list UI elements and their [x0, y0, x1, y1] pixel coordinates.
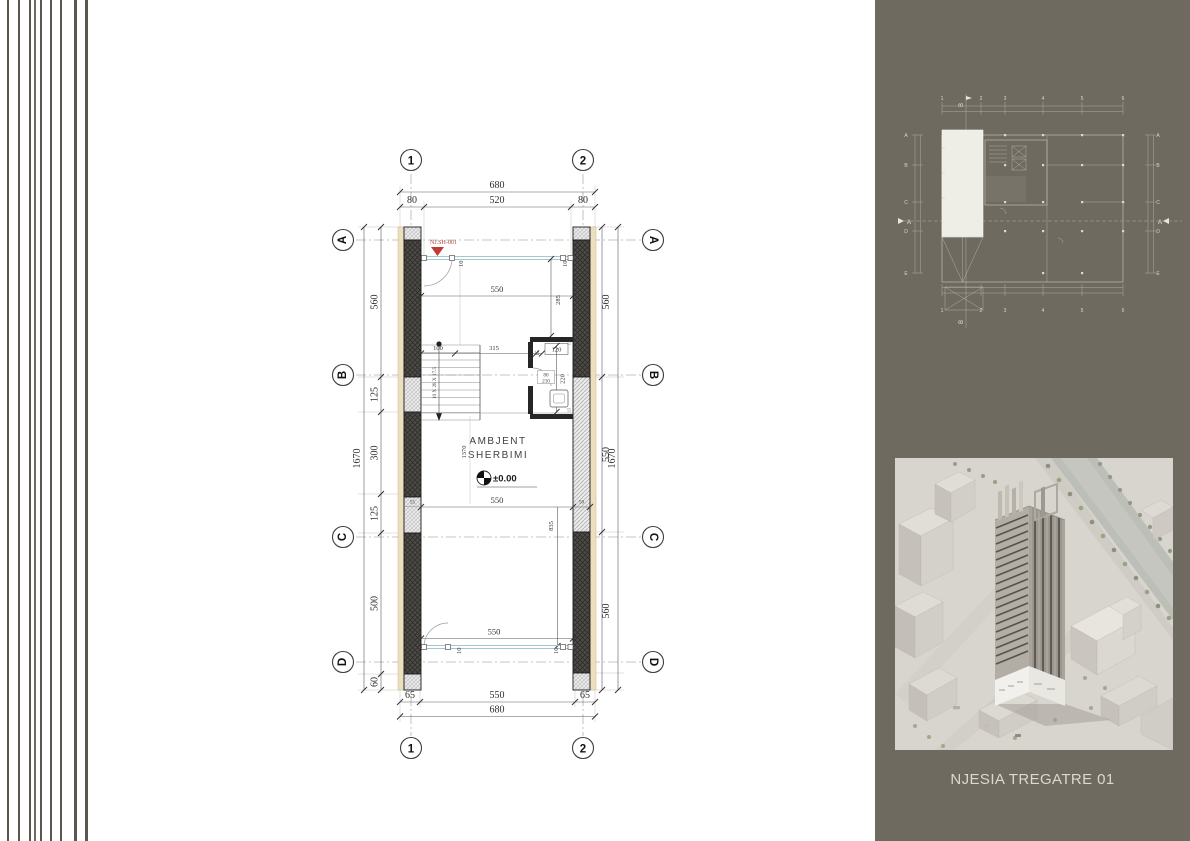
dim: 680	[490, 705, 505, 716]
car	[983, 724, 990, 727]
dim: 15	[535, 350, 541, 356]
unit-tag-label: NJ.SH-001	[430, 240, 457, 246]
dim: 80	[578, 195, 588, 206]
decorative-line	[34, 0, 36, 841]
kp-row: C	[904, 200, 908, 206]
grid-bubble-A-right: A	[647, 236, 659, 244]
level-value: ±0.00	[493, 474, 517, 485]
upper-interior-dims: 550 285	[418, 256, 576, 339]
stair-note: 10 X 28 X 17.5	[432, 367, 438, 400]
right-dims: 560 550 560 1670	[599, 224, 621, 693]
dim: 15	[567, 407, 572, 412]
kp-row: C	[1156, 200, 1160, 206]
kp-col: 1	[941, 308, 944, 314]
keyplan-building	[942, 130, 1124, 310]
dim: 220	[560, 374, 567, 384]
grid-bubble-C-left: C	[337, 533, 349, 541]
glass-thk-label: 10	[553, 648, 560, 655]
dim: 80	[407, 195, 417, 206]
glass-thk-label: 10	[458, 261, 465, 268]
kp-col: 3	[1004, 96, 1007, 102]
decorative-line	[7, 0, 9, 841]
grid-bubble-2-bottom: 2	[580, 744, 586, 756]
kp-row: D	[904, 229, 908, 235]
dim: 1370	[461, 446, 468, 459]
dim: 60	[370, 677, 381, 687]
wc-fixture	[550, 390, 568, 407]
car	[1015, 734, 1021, 737]
kp-row: A	[1156, 133, 1160, 139]
flag-label-top: B	[959, 103, 965, 107]
dim: 560	[601, 295, 612, 310]
dim: 500	[370, 596, 381, 611]
grid-bubble-A-left: A	[337, 236, 349, 244]
side-panel: 1 2 3 4 5 6 1 2 3 4 5 6 A B C D E A B C	[875, 0, 1190, 841]
unit-tag-marker	[431, 247, 444, 256]
presentation-board: 10 10 NJ.SH-001 550 285 10 X 28 X 17.5	[0, 0, 1190, 841]
dim: 125	[370, 387, 381, 402]
wc-rooms: 120 80 210 220 15 15	[528, 337, 573, 419]
dim: 15	[567, 340, 572, 345]
render-caption: NJESIA TREGATRE 01	[875, 771, 1190, 788]
room-annotation: AMBJENT SHERBIMI 1370 ±0.00	[461, 416, 537, 504]
dim: 550	[491, 495, 504, 505]
dim: 55	[410, 500, 416, 506]
kp-col: 1	[941, 96, 944, 102]
flag-label-bottom: B	[959, 320, 965, 324]
kp-col: 3	[1004, 308, 1007, 314]
grid-bubble-C-right: C	[647, 533, 659, 541]
kp-row: A	[904, 133, 908, 139]
grid-bubble-1-bottom: 1	[408, 744, 415, 756]
dim: 50	[579, 500, 585, 506]
kp-col: 4	[1042, 96, 1045, 102]
grid-bubble-D-left: D	[337, 658, 349, 666]
dim: 1670	[607, 449, 618, 469]
decorative-line	[18, 0, 20, 841]
kp-row: E	[1156, 271, 1160, 277]
grid-bubble-B-left: B	[337, 371, 349, 379]
section-label-right: A	[1158, 220, 1162, 226]
dim: 1670	[352, 449, 363, 469]
kp-row: D	[1156, 229, 1160, 235]
dim: 550	[490, 690, 505, 701]
door-height: 210	[542, 379, 550, 385]
dim: 680	[490, 180, 505, 191]
dim: 65	[405, 690, 415, 701]
kp-row: B	[1156, 163, 1160, 169]
kp-col: 5	[1081, 96, 1084, 102]
insulation-left	[398, 227, 404, 690]
flag-icon	[966, 96, 972, 100]
door-swing	[424, 623, 448, 647]
insulation-right	[590, 227, 596, 690]
unit-tag: NJ.SH-001	[430, 240, 457, 256]
section-arrow-icon	[1163, 218, 1169, 224]
dim: 560	[370, 295, 381, 310]
building-render	[895, 458, 1173, 750]
dim: 550	[488, 627, 501, 637]
room-label-2: SHERBIMI	[468, 450, 528, 461]
dim: 65	[580, 690, 590, 701]
floor-plan: 10 10 NJ.SH-001 550 285 10 X 28 X 17.5	[325, 140, 685, 780]
dim: 835	[548, 521, 555, 531]
decorative-line	[60, 0, 62, 841]
door-swing	[424, 258, 452, 286]
dim: 560	[601, 604, 612, 619]
top-dims: 680 80 520 80	[397, 180, 598, 210]
glass-thk-label: 10	[456, 648, 463, 655]
kp-row: B	[904, 163, 908, 169]
dim: 285	[555, 295, 562, 305]
car	[953, 706, 960, 709]
kp-col: 5	[1081, 308, 1084, 314]
keyplan-columns	[1004, 134, 1124, 274]
section-label-left: A	[907, 220, 911, 226]
kp-col: 2	[980, 96, 983, 102]
room-label-1: AMBJENT	[469, 436, 526, 447]
kp-row: E	[904, 271, 908, 277]
grid-bubble-D-right: D	[647, 658, 659, 666]
grid-bubble-2-top: 2	[580, 156, 586, 168]
storefront-bottom: 550 10 10	[418, 623, 576, 654]
highlighted-unit	[942, 130, 983, 237]
dim: 520	[490, 195, 505, 206]
kp-col: 4	[1042, 308, 1045, 314]
left-dims: 560 125 300 125 500 60 1670	[352, 224, 384, 693]
decorative-line	[50, 0, 52, 841]
dim: 100	[433, 345, 443, 352]
decorative-line	[74, 0, 77, 841]
dim: 550	[491, 284, 504, 294]
bottom-dims: 65 550 65 680	[397, 690, 598, 720]
grid-bubble-1-top: 1	[408, 156, 415, 168]
dim: 300	[370, 446, 381, 461]
grid-bubble-B-right: B	[647, 371, 659, 379]
section-arrow-icon	[898, 218, 904, 224]
glass-thk-label: 10	[562, 261, 569, 268]
kp-col: 6	[1122, 96, 1125, 102]
dim: 315	[489, 345, 499, 352]
decorative-line	[85, 0, 88, 841]
decorative-line	[29, 0, 31, 841]
kp-col: 6	[1122, 308, 1125, 314]
key-plan: 1 2 3 4 5 6 1 2 3 4 5 6 A B C D E A B C	[890, 88, 1190, 348]
decorative-line	[40, 0, 42, 841]
dim: 125	[370, 506, 381, 521]
